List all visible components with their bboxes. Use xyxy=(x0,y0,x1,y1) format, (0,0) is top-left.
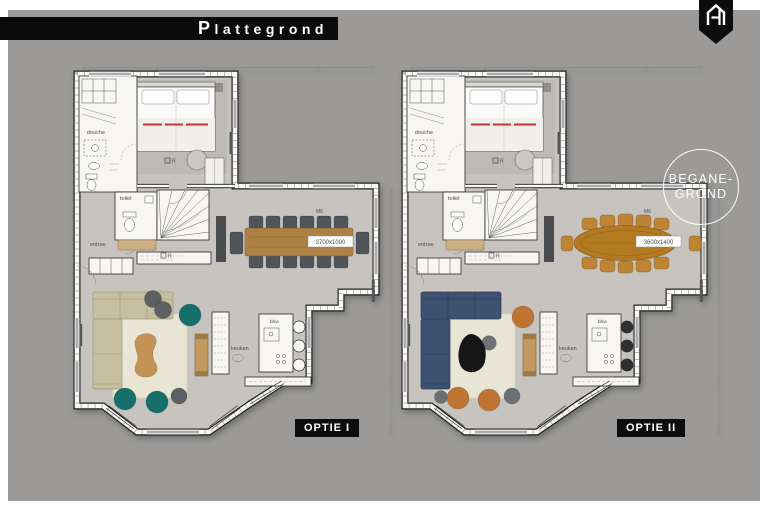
sideboard xyxy=(195,334,208,376)
table-size-label: 3600x1400 xyxy=(636,236,681,247)
shower-label: douche xyxy=(415,130,433,136)
fireplace xyxy=(216,216,226,262)
washbasin xyxy=(89,163,100,170)
bench xyxy=(446,240,484,250)
toilet-label: toilet xyxy=(448,196,460,202)
svg-text:3700x1000: 3700x1000 xyxy=(316,240,346,246)
counter xyxy=(573,377,639,386)
annotation-strip xyxy=(212,312,229,374)
fireplace xyxy=(544,216,554,262)
bar-stools xyxy=(621,321,633,371)
floor-plan-drawing: R douche xyxy=(403,66,721,434)
floor-plan-optie-2: R douche xyxy=(401,66,723,440)
svg-text:R: R xyxy=(496,254,500,260)
bed xyxy=(457,82,551,151)
floor-level-badge: BEGANE- GROND xyxy=(663,149,739,225)
bench xyxy=(118,240,156,250)
svg-text:3600x1400: 3600x1400 xyxy=(644,240,674,246)
floor-plan-drawing: R douche xyxy=(75,66,393,434)
shower-room: douche xyxy=(79,76,137,192)
counter xyxy=(245,377,311,386)
bedroom: R xyxy=(451,80,561,188)
hall-label: entree xyxy=(418,242,434,248)
floor-plan-optie-1: R douche xyxy=(73,66,395,440)
wall-radiator xyxy=(79,324,82,346)
page-title: Plattegrond xyxy=(0,17,338,40)
bedroom: R xyxy=(123,80,233,188)
wc-fixture xyxy=(414,174,425,191)
svg-text:R: R xyxy=(168,254,172,260)
annotation-strip xyxy=(540,312,557,374)
wall-tag: M6 xyxy=(644,209,651,215)
svg-text:R: R xyxy=(500,159,504,165)
toilet-label: toilet xyxy=(120,196,132,202)
island-label: bhw xyxy=(270,319,279,325)
bedside-table xyxy=(515,150,535,170)
island-label: bhw xyxy=(598,319,607,325)
sideboard xyxy=(523,334,536,376)
floor-badge-line2: GROND xyxy=(675,187,728,202)
shower-room: douche xyxy=(407,76,465,192)
wall-radiator xyxy=(700,280,703,302)
house-shield-logo-icon xyxy=(699,0,733,46)
optie-2-caption: OPTIE II xyxy=(617,419,685,437)
kitchen-island: bhw xyxy=(587,314,621,372)
wall-radiator xyxy=(558,132,561,154)
washbasin xyxy=(417,163,428,170)
wall-radiator xyxy=(407,324,410,346)
kitchen-label: keuken xyxy=(559,346,577,352)
wardrobe xyxy=(533,158,552,188)
wardrobe xyxy=(205,158,224,188)
bar-stools xyxy=(293,321,305,371)
bedside-table xyxy=(187,150,207,170)
wall-radiator xyxy=(230,132,233,154)
optie-1-caption: OPTIE I xyxy=(295,419,359,437)
wc-fixture xyxy=(86,174,97,191)
shower-label: douche xyxy=(87,130,105,136)
svg-text:R: R xyxy=(172,159,176,165)
kitchen-label: keuken xyxy=(231,346,249,352)
table-size-label: 3700x1000 xyxy=(308,236,353,247)
kitchen-island: bhw xyxy=(259,314,293,372)
floor-badge-line1: BEGANE- xyxy=(669,172,734,187)
hall-label: entree xyxy=(90,242,106,248)
bed xyxy=(129,82,223,151)
wall-tag: M6 xyxy=(316,209,323,215)
wall-radiator xyxy=(372,280,375,302)
